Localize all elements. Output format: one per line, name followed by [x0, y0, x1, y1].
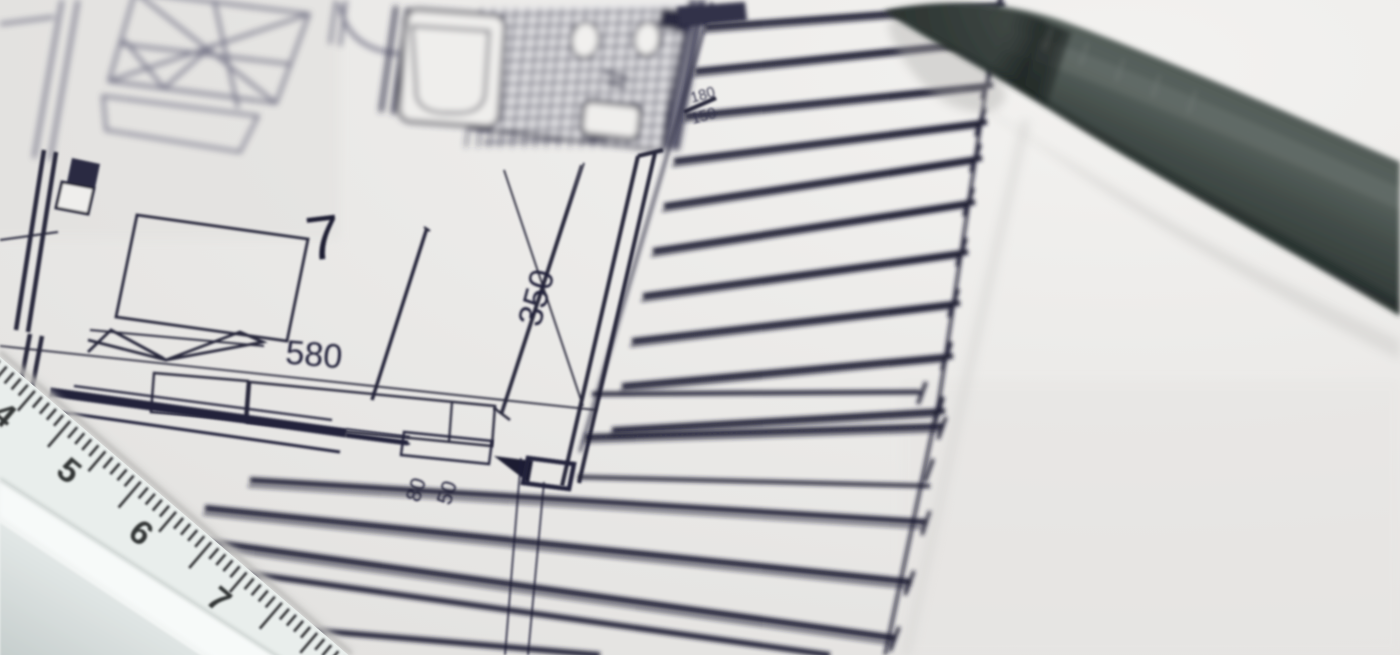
svg-text:580: 580	[284, 334, 344, 377]
